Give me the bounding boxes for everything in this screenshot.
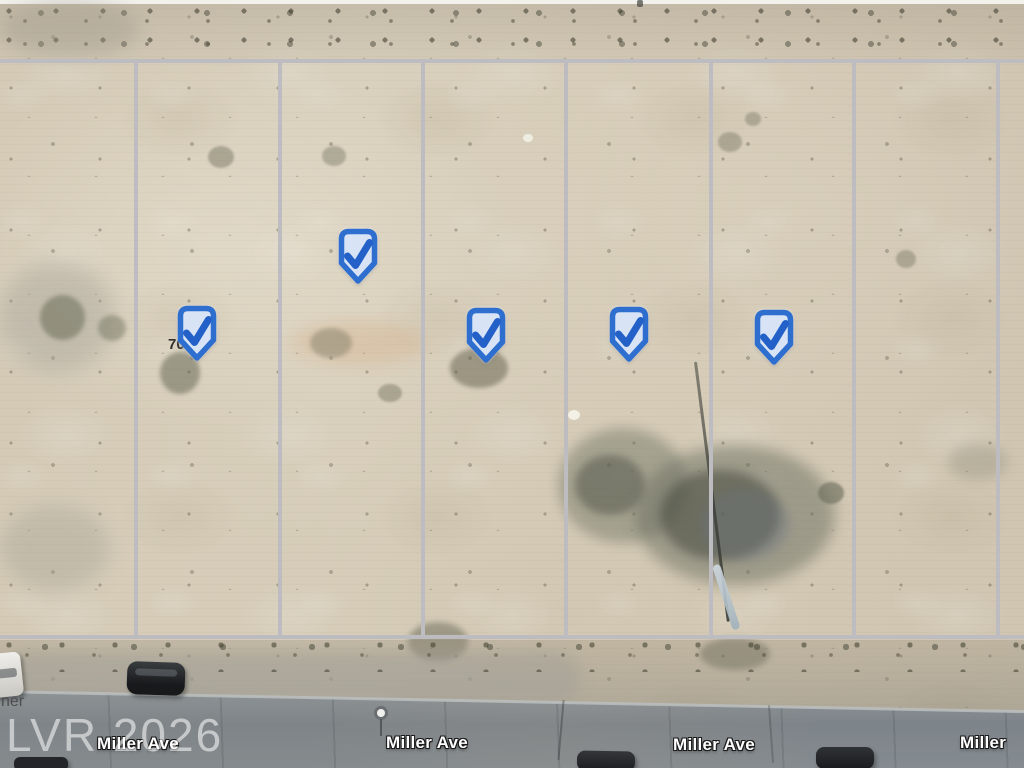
check-shield-icon (173, 303, 221, 361)
map-canvas[interactable]: Miller Ave Miller Ave Miller Ave Miller … (0, 0, 1024, 768)
terrain-patch (0, 0, 140, 58)
shrub-cluster (40, 295, 85, 340)
dark-vegetation-patch (575, 455, 645, 515)
bright-spot (523, 134, 533, 142)
shrub-cluster (896, 250, 916, 268)
street-label-partial: Miller (960, 733, 1006, 753)
parcel-boundary-line (134, 60, 138, 639)
shrub-cluster (718, 132, 742, 152)
parcel-boundary-line (0, 59, 1024, 63)
check-shield-icon (750, 307, 798, 365)
shrub-cluster (208, 146, 234, 168)
parcel-boundary-line (852, 60, 856, 639)
parcel-check-shield-marker[interactable] (462, 305, 510, 363)
dark-car (816, 747, 874, 768)
terrain-patch (0, 505, 110, 590)
check-shield-icon (334, 226, 382, 284)
mls-watermark: LVR 2026 (6, 708, 223, 762)
shrub-cluster (378, 384, 402, 402)
check-shield-icon (605, 304, 653, 362)
utility-marker-dot (374, 706, 388, 720)
utility-marker-stem (380, 719, 382, 736)
parcel-boundary-line (709, 60, 713, 639)
bright-spot (568, 410, 580, 420)
image-top-edge (0, 0, 1024, 4)
dark-car (577, 750, 635, 768)
shrub-cluster (98, 315, 126, 341)
dark-car (126, 661, 185, 696)
parcel-check-shield-marker[interactable] (605, 304, 653, 362)
parcel-check-shield-marker[interactable] (173, 303, 221, 361)
upper-shrub-row (0, 4, 1024, 52)
shrub-cluster (322, 146, 346, 166)
parcel-boundary-line (421, 60, 425, 639)
parcel-check-shield-marker[interactable] (334, 226, 382, 284)
parcel-boundary-line (564, 60, 568, 639)
shrub-cluster (310, 328, 352, 358)
top-edge-mark (637, 0, 643, 7)
check-shield-icon (462, 305, 510, 363)
shrub-cluster (745, 112, 761, 126)
street-label: Miller Ave (673, 735, 755, 755)
parcel-check-shield-marker[interactable] (750, 307, 798, 365)
parcel-boundary-line (996, 60, 1000, 639)
parcel-boundary-line (278, 60, 282, 639)
street-label: Miller Ave (386, 733, 468, 753)
